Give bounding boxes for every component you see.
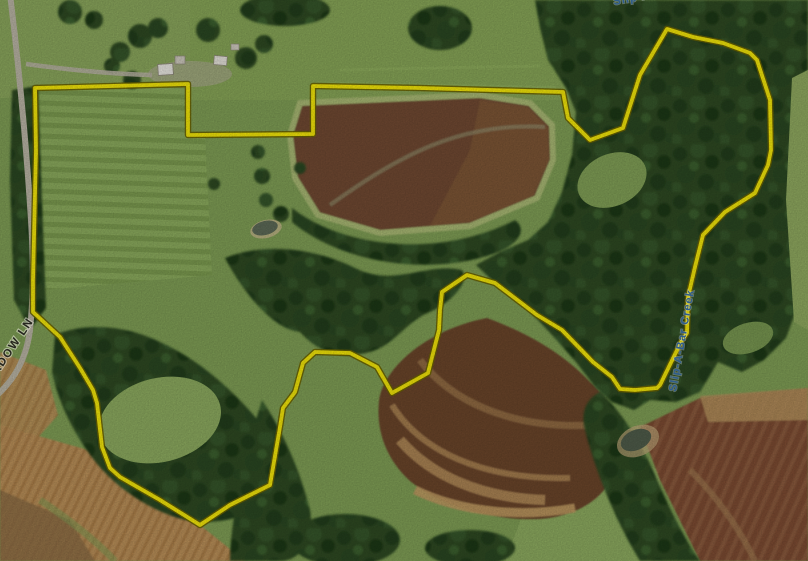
aerial-map-viewport[interactable]: MEADOW LN Slip-A-Bar Creek Slip-A-Bar Cr…	[0, 0, 808, 561]
photo-grain-overlay	[0, 0, 808, 561]
aerial-map-canvas: MEADOW LN Slip-A-Bar Creek Slip-A-Bar Cr…	[0, 0, 808, 561]
